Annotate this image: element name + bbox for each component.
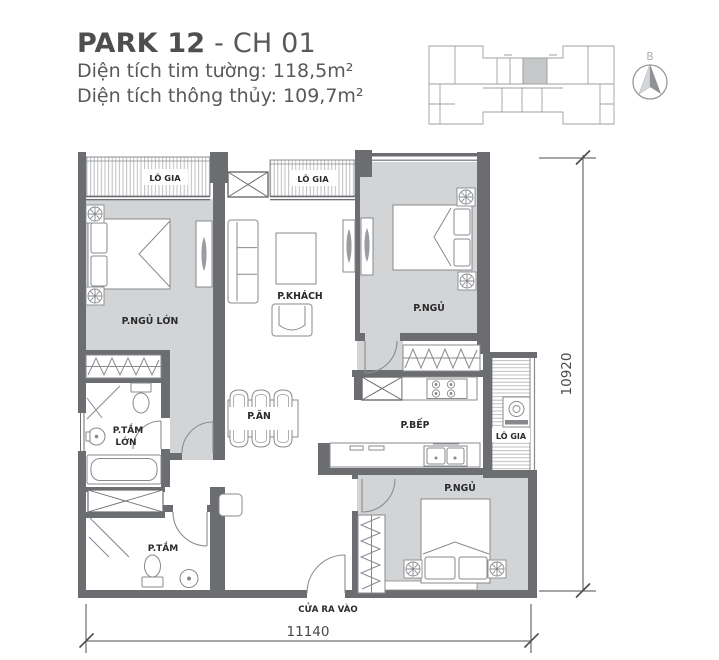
bathroom-2 bbox=[89, 517, 198, 588]
compass-north-label: B bbox=[646, 51, 653, 63]
room-label-balcony-right: LÔ GIA bbox=[496, 430, 527, 441]
pillow bbox=[459, 557, 487, 579]
dimension-width-value: 11140 bbox=[287, 624, 330, 640]
entrance-label: CỬA RA VÀO bbox=[298, 602, 357, 615]
shower-screen bbox=[89, 517, 129, 557]
room-label-balcony-top-left: LÔ GIA bbox=[149, 172, 181, 183]
ceiling-fan-icon bbox=[86, 205, 104, 223]
dining-chair bbox=[230, 430, 248, 447]
dimension-height-value: 10920 bbox=[559, 353, 575, 396]
master-door-opening bbox=[182, 453, 213, 460]
laundry bbox=[503, 397, 530, 427]
dining-chair bbox=[230, 390, 248, 407]
key-plan-highlighted-unit bbox=[523, 58, 547, 84]
sofa bbox=[228, 220, 258, 303]
room-label-bedroom-3: P.NGỦ bbox=[444, 481, 476, 494]
room-label-living-room: P.KHÁCH bbox=[277, 290, 322, 302]
counter-item bbox=[350, 446, 363, 450]
toilet-tank bbox=[131, 383, 151, 392]
pillow bbox=[91, 223, 107, 253]
counter-item bbox=[369, 446, 384, 450]
entrance-door bbox=[307, 555, 345, 593]
ceiling-fan-icon bbox=[404, 560, 422, 578]
ceiling-fan-icon bbox=[86, 287, 104, 305]
dining-chair bbox=[252, 390, 270, 407]
armchair bbox=[272, 304, 312, 336]
dining-chair bbox=[252, 430, 270, 447]
bathroom2-door bbox=[173, 512, 207, 546]
pillow bbox=[454, 209, 470, 235]
room-label-kitchen: P.BẾP bbox=[401, 418, 430, 431]
window-master-balcony bbox=[86, 196, 210, 197]
room-label-master-bath-1: P.TẮM bbox=[113, 423, 143, 436]
room-label-master-bath-2: LỚN bbox=[115, 436, 136, 448]
living-room bbox=[228, 220, 355, 336]
ceiling-fan-icon bbox=[488, 560, 506, 578]
compass: B bbox=[633, 51, 667, 99]
sink-drain bbox=[454, 457, 457, 460]
room-label-dining: P.ĂN bbox=[247, 410, 271, 422]
toilet-tank bbox=[142, 577, 163, 587]
pillow bbox=[425, 557, 455, 579]
window-living-balcony bbox=[270, 196, 355, 197]
pillow bbox=[91, 256, 107, 286]
floor-plan: LÔ GIA LÔ GIA LÔ GIA P.NGỦ LỚN P.KHÁCH P… bbox=[0, 0, 719, 660]
shower-screen bbox=[87, 386, 120, 419]
room-label-master-bedroom: P.NGỦ LỚN bbox=[122, 314, 179, 327]
console-table bbox=[219, 494, 242, 516]
toilet-bowl bbox=[133, 393, 149, 413]
room-label-bedroom-2: P.NGỦ bbox=[413, 301, 445, 314]
sink-drain bbox=[435, 457, 438, 460]
coffee-table bbox=[276, 233, 316, 284]
floorplan-page: PARK 12 - CH 01 Diện tích tim tường: 118… bbox=[0, 0, 719, 660]
basin-tap bbox=[86, 432, 90, 441]
dining-chair bbox=[274, 390, 292, 407]
bathtub bbox=[87, 455, 161, 484]
toilet-bowl bbox=[145, 555, 161, 577]
pillow bbox=[454, 239, 470, 266]
dining-chair bbox=[274, 430, 292, 447]
window-bathroom-left bbox=[78, 413, 86, 451]
ceiling-fan-icon bbox=[457, 188, 475, 206]
washer-panel bbox=[505, 420, 528, 425]
ceiling-fan-icon bbox=[458, 272, 476, 290]
room-label-bathroom-2: P.TẮM bbox=[148, 541, 178, 554]
building-key-plan bbox=[429, 46, 614, 124]
room-label-balcony-top-center: LÔ GIA bbox=[297, 173, 329, 184]
